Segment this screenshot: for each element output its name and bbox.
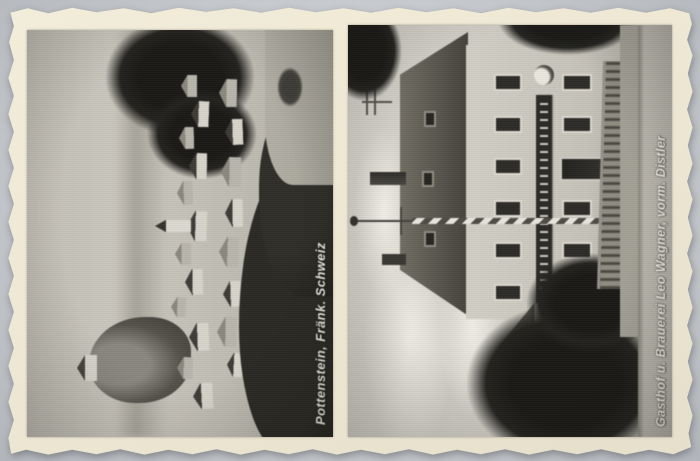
overhanging-branch bbox=[348, 25, 402, 101]
maypole-top bbox=[356, 220, 414, 222]
chimney bbox=[382, 254, 406, 265]
left-photo-scene: Pottenstein, Fränk. Schweiz bbox=[27, 30, 333, 437]
town-house bbox=[170, 297, 186, 318]
scanned-postcard-stage: Pottenstein, Fränk. Schweiz bbox=[0, 0, 700, 461]
window bbox=[494, 242, 522, 259]
tree bbox=[498, 25, 638, 55]
window bbox=[494, 74, 522, 91]
town-house bbox=[175, 243, 191, 265]
roof-dormer-window bbox=[424, 111, 436, 127]
window bbox=[494, 158, 522, 175]
town-house bbox=[217, 317, 238, 347]
right-photo-scene: Gasthof u. Brauerei Leo Wagner, vorm. Di… bbox=[348, 25, 672, 437]
window bbox=[562, 200, 592, 217]
town-house bbox=[189, 323, 210, 352]
town-house bbox=[177, 181, 194, 206]
town-house bbox=[225, 199, 243, 227]
right-photo-gasthof: Gasthof u. Brauerei Leo Wagner, vorm. Di… bbox=[348, 25, 672, 437]
postcard-shadow-wrap: Pottenstein, Fränk. Schweiz bbox=[0, 0, 700, 461]
rooftop-vent-tower bbox=[370, 172, 406, 185]
castle-rock bbox=[89, 317, 191, 403]
roof-dormer-window bbox=[422, 171, 434, 187]
window bbox=[494, 200, 522, 217]
left-photo-caption: Pottenstein, Fränk. Schweiz bbox=[313, 242, 328, 425]
town-house bbox=[192, 382, 213, 409]
window bbox=[494, 284, 522, 301]
postcard: Pottenstein, Fränk. Schweiz bbox=[7, 6, 694, 456]
castle-building bbox=[77, 355, 97, 381]
round-emblem-sign bbox=[534, 65, 554, 85]
maypole-finial bbox=[350, 216, 358, 226]
town-house bbox=[218, 237, 239, 268]
maypole-crossarm bbox=[400, 207, 402, 235]
meadow bbox=[265, 30, 333, 185]
roof-dormer-window bbox=[424, 231, 436, 247]
left-photo-pottenstein: Pottenstein, Fränk. Schweiz bbox=[27, 30, 333, 437]
window bbox=[494, 116, 522, 133]
town-house bbox=[185, 269, 203, 295]
meadow-bushes bbox=[277, 67, 303, 107]
window bbox=[562, 116, 592, 133]
window bbox=[562, 74, 592, 91]
right-photo-caption: Gasthof u. Brauerei Leo Wagner, vorm. Di… bbox=[654, 136, 668, 427]
